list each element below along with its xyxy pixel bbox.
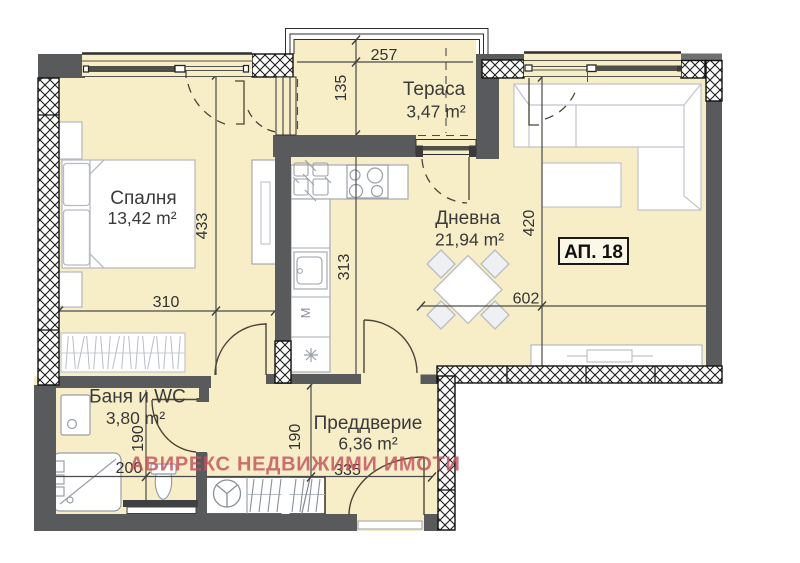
svg-text:Баня и WC: Баня и WC bbox=[89, 387, 186, 408]
svg-text:Дневна: Дневна bbox=[435, 208, 501, 229]
svg-text:13,42 m²: 13,42 m² bbox=[107, 208, 176, 228]
svg-text:420: 420 bbox=[521, 210, 538, 237]
svg-text:310: 310 bbox=[153, 294, 180, 311]
svg-text:190: 190 bbox=[130, 425, 147, 452]
svg-text:3,47 m²: 3,47 m² bbox=[406, 102, 465, 122]
svg-text:3,80 m²: 3,80 m² bbox=[106, 408, 165, 428]
svg-text:M: M bbox=[298, 308, 313, 319]
svg-text:АП. 18: АП. 18 bbox=[564, 242, 623, 263]
svg-text:257: 257 bbox=[371, 47, 398, 64]
svg-text:313: 313 bbox=[336, 254, 353, 281]
svg-text:135: 135 bbox=[333, 75, 350, 102]
svg-text:433: 433 bbox=[194, 213, 211, 240]
svg-text:6,36 m²: 6,36 m² bbox=[338, 434, 397, 454]
svg-text:190: 190 bbox=[287, 424, 304, 451]
svg-text:602: 602 bbox=[513, 291, 540, 308]
svg-text:21,94 m²: 21,94 m² bbox=[435, 230, 504, 250]
svg-text:Спалня: Спалня bbox=[110, 188, 176, 209]
svg-text:АВИРЕКС НЕДВИЖИМИ ИМОТИ: АВИРЕКС НЕДВИЖИМИ ИМОТИ bbox=[129, 454, 460, 476]
svg-text:Тераса: Тераса bbox=[403, 79, 466, 100]
svg-text:Преддверие: Преддверие bbox=[314, 413, 423, 434]
